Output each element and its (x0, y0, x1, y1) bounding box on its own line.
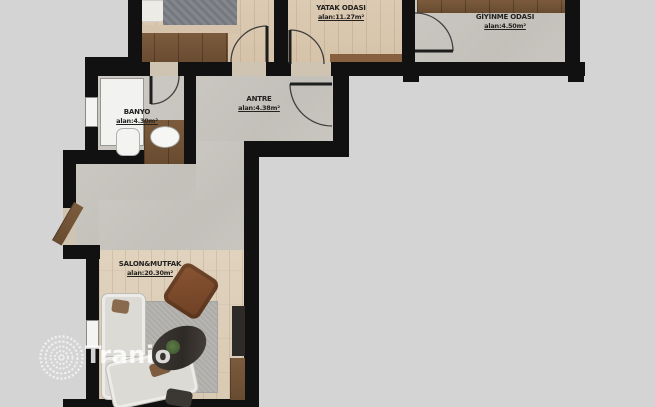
bedroom1-door-threshold (232, 62, 266, 76)
wall (128, 0, 142, 64)
room-label-giyinme: GİYİNME ODASI alan:4.50m² (445, 13, 565, 31)
wall (244, 141, 349, 157)
room-name: YATAK ODASI (316, 4, 365, 12)
wall (266, 62, 291, 76)
wall (331, 62, 585, 76)
wall (274, 0, 288, 64)
room-name: ANTRE (246, 95, 271, 103)
bed-blanket (163, 0, 237, 27)
room-name: GİYİNME ODASI (476, 13, 534, 21)
wall (86, 245, 99, 320)
wall (85, 57, 98, 97)
tranio-watermark-text: Tranio (85, 341, 172, 369)
tranio-logo-icon (38, 334, 85, 381)
room-area: alan:4.30m² (97, 117, 177, 125)
room-label-banyo: BANYO alan:4.30m² (97, 108, 177, 126)
side-table (165, 388, 193, 407)
wall (244, 141, 259, 407)
room-label-salon: SALON&MUTFAK alan:20.30m² (100, 260, 200, 278)
wall (402, 0, 415, 67)
kitchen-counter (230, 358, 245, 400)
bedroom2-door-threshold (291, 62, 331, 76)
wall (63, 150, 76, 208)
room-name: SALON&MUTFAK (119, 260, 181, 268)
room-name: BANYO (124, 108, 150, 116)
room-area: alan:4.50m² (445, 22, 565, 30)
wall (178, 62, 232, 76)
wall (565, 0, 580, 76)
room-label-yatak: YATAK ODASI alan:11.27m² (291, 4, 391, 22)
room-label-antre: ANTRE alan:4.38m² (219, 95, 299, 113)
sofa-pillow (111, 299, 130, 314)
room-area: alan:20.30m² (100, 269, 200, 277)
bedroom-dresser (130, 33, 228, 64)
dressing-room-wardrobe (417, 0, 565, 13)
kitchen-floor (99, 200, 244, 252)
tv-unit (232, 306, 245, 356)
bathroom-door-threshold (150, 62, 178, 76)
bathroom-sink (150, 126, 180, 148)
room-area: alan:4.38m² (219, 104, 299, 112)
toilet (116, 128, 140, 156)
wall (568, 70, 584, 82)
floorplan-image: YATAK ODASI alan:11.27m² GİYİNME ODASI a… (0, 0, 655, 407)
room-area: alan:11.27m² (291, 13, 391, 21)
wall (403, 70, 419, 82)
